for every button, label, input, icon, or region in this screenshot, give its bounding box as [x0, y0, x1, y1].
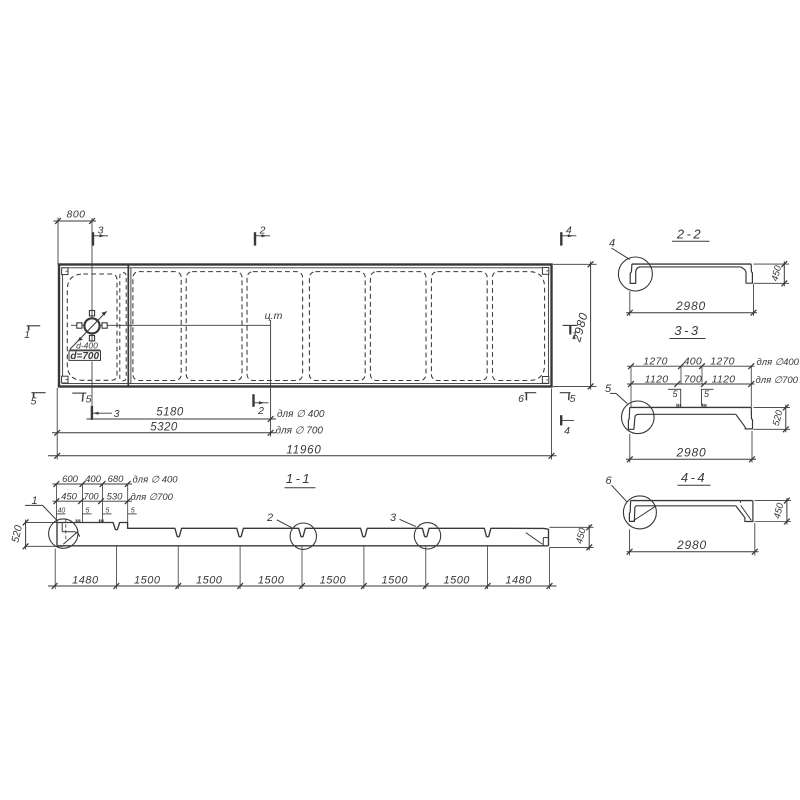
- svg-text:600: 600: [62, 474, 79, 485]
- svg-text:3: 3: [98, 225, 104, 237]
- svg-text:1500: 1500: [258, 575, 285, 587]
- svg-text:450: 450: [61, 491, 78, 502]
- svg-text:11960: 11960: [286, 444, 321, 456]
- svg-text:2-2: 2-2: [676, 227, 703, 242]
- svg-text:4: 4: [566, 225, 572, 237]
- svg-text:1500: 1500: [443, 575, 470, 587]
- svg-text:для ∅ 400: для ∅ 400: [133, 475, 179, 486]
- svg-text:1-1: 1-1: [286, 471, 312, 486]
- svg-text:530: 530: [107, 491, 124, 502]
- svg-text:для ∅700: для ∅700: [756, 375, 799, 386]
- svg-text:для ∅ 700: для ∅ 700: [276, 425, 324, 436]
- svg-text:4: 4: [564, 425, 570, 437]
- svg-text:5: 5: [86, 508, 90, 515]
- svg-text:1: 1: [24, 329, 30, 341]
- svg-text:d-400: d-400: [76, 340, 98, 350]
- svg-text:3: 3: [114, 408, 120, 420]
- svg-text:40: 40: [58, 508, 66, 515]
- svg-text:680: 680: [108, 474, 125, 485]
- svg-text:для ∅ 400: для ∅ 400: [277, 409, 325, 420]
- svg-text:2: 2: [259, 225, 266, 237]
- svg-text:700: 700: [83, 491, 98, 501]
- svg-text:для ∅400: для ∅400: [757, 357, 800, 368]
- svg-text:5: 5: [570, 393, 576, 405]
- svg-text:ц.т: ц.т: [265, 310, 283, 322]
- svg-text:1500: 1500: [134, 575, 161, 587]
- svg-text:3: 3: [390, 512, 397, 524]
- svg-text:2: 2: [266, 512, 273, 524]
- svg-text:400: 400: [85, 474, 102, 485]
- svg-text:1270: 1270: [710, 356, 735, 368]
- svg-text:1480: 1480: [505, 575, 532, 587]
- svg-text:700: 700: [684, 373, 702, 385]
- svg-text:для ∅700: для ∅700: [131, 492, 174, 503]
- svg-text:1500: 1500: [196, 575, 223, 587]
- svg-text:5180: 5180: [156, 407, 184, 419]
- svg-text:400: 400: [684, 356, 702, 368]
- svg-text:1500: 1500: [382, 575, 409, 587]
- svg-text:2980: 2980: [675, 299, 706, 313]
- svg-text:5320: 5320: [150, 422, 178, 434]
- svg-text:3-3: 3-3: [674, 323, 700, 338]
- svg-text:1480: 1480: [72, 575, 99, 587]
- svg-text:2980: 2980: [676, 446, 707, 460]
- svg-text:1120: 1120: [712, 373, 736, 385]
- svg-text:1270: 1270: [643, 356, 668, 368]
- svg-text:4-4: 4-4: [681, 470, 707, 485]
- svg-text:5: 5: [106, 508, 110, 515]
- svg-text:1120: 1120: [645, 373, 669, 385]
- svg-text:5: 5: [131, 508, 135, 515]
- svg-text:5: 5: [31, 396, 37, 408]
- svg-text:6: 6: [518, 393, 524, 405]
- svg-text:2980: 2980: [676, 538, 707, 552]
- svg-text:800: 800: [66, 209, 85, 221]
- svg-text:5: 5: [86, 393, 92, 405]
- svg-text:d=700: d=700: [70, 351, 99, 362]
- svg-text:2: 2: [257, 405, 264, 417]
- svg-text:1500: 1500: [320, 575, 347, 587]
